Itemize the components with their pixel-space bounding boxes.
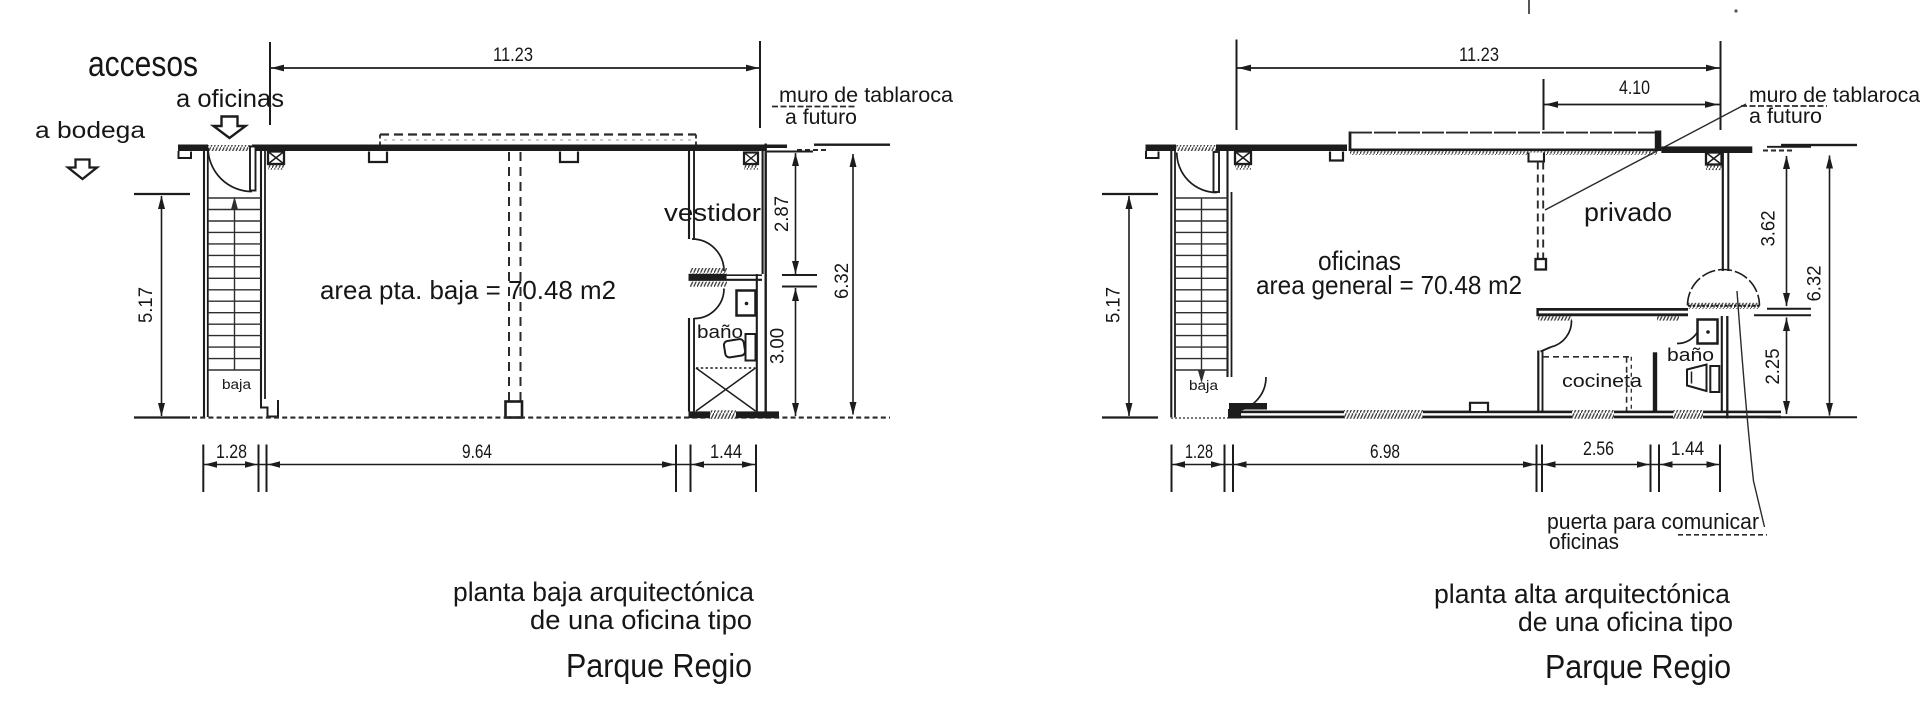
svg-text:6.98: 6.98 — [1370, 442, 1400, 463]
svg-text:oficinas: oficinas — [1549, 529, 1619, 554]
svg-text:1.44: 1.44 — [710, 442, 742, 463]
svg-text:11.23: 11.23 — [493, 45, 533, 66]
svg-text:5.17: 5.17 — [136, 287, 157, 323]
svg-text:a futuro: a futuro — [785, 105, 857, 129]
svg-text:baja: baja — [1189, 378, 1219, 393]
svg-text:2.56: 2.56 — [1583, 439, 1614, 460]
svg-text:Parque Regio: Parque Regio — [566, 647, 752, 684]
svg-text:1.28: 1.28 — [216, 442, 247, 463]
svg-text:de una oficina tipo: de una oficina tipo — [1518, 607, 1733, 637]
svg-text:Parque Regio: Parque Regio — [1545, 648, 1731, 685]
svg-text:2.25: 2.25 — [1763, 349, 1784, 385]
svg-text:area pta. baja = 70.48 m2: area pta. baja = 70.48 m2 — [320, 275, 616, 305]
svg-text:planta baja arquitectónica: planta baja arquitectónica — [453, 577, 754, 607]
svg-text:baja: baja — [222, 377, 252, 392]
svg-text:11.23: 11.23 — [1459, 45, 1499, 66]
svg-text:5.17: 5.17 — [1104, 287, 1125, 323]
svg-text:6.32: 6.32 — [832, 263, 853, 299]
svg-text:privado: privado — [1584, 197, 1672, 227]
svg-text:a bodega: a bodega — [35, 117, 146, 143]
svg-text:2.87: 2.87 — [772, 196, 793, 232]
svg-text:a oficinas: a oficinas — [176, 85, 284, 113]
svg-text:de una oficina tipo: de una oficina tipo — [530, 605, 752, 635]
svg-text:planta alta arquitectónica: planta alta arquitectónica — [1434, 579, 1730, 609]
svg-text:6.32: 6.32 — [1805, 266, 1826, 302]
svg-text:9.64: 9.64 — [462, 442, 492, 463]
svg-text:vestidor: vestidor — [664, 200, 761, 227]
svg-text:a futuro: a futuro — [1749, 104, 1822, 128]
svg-text:area general = 70.48 m2: area general = 70.48 m2 — [1256, 270, 1522, 300]
svg-text:1.28: 1.28 — [1185, 442, 1213, 463]
svg-text:3.62: 3.62 — [1759, 211, 1780, 247]
svg-text:4.10: 4.10 — [1619, 78, 1650, 99]
svg-text:baño: baño — [1667, 345, 1714, 365]
svg-text:accesos: accesos — [88, 43, 198, 84]
svg-text:3.00: 3.00 — [768, 328, 789, 364]
svg-text:muro de tablaroca: muro de tablaroca — [779, 83, 953, 107]
svg-text:1.44: 1.44 — [1671, 439, 1704, 460]
